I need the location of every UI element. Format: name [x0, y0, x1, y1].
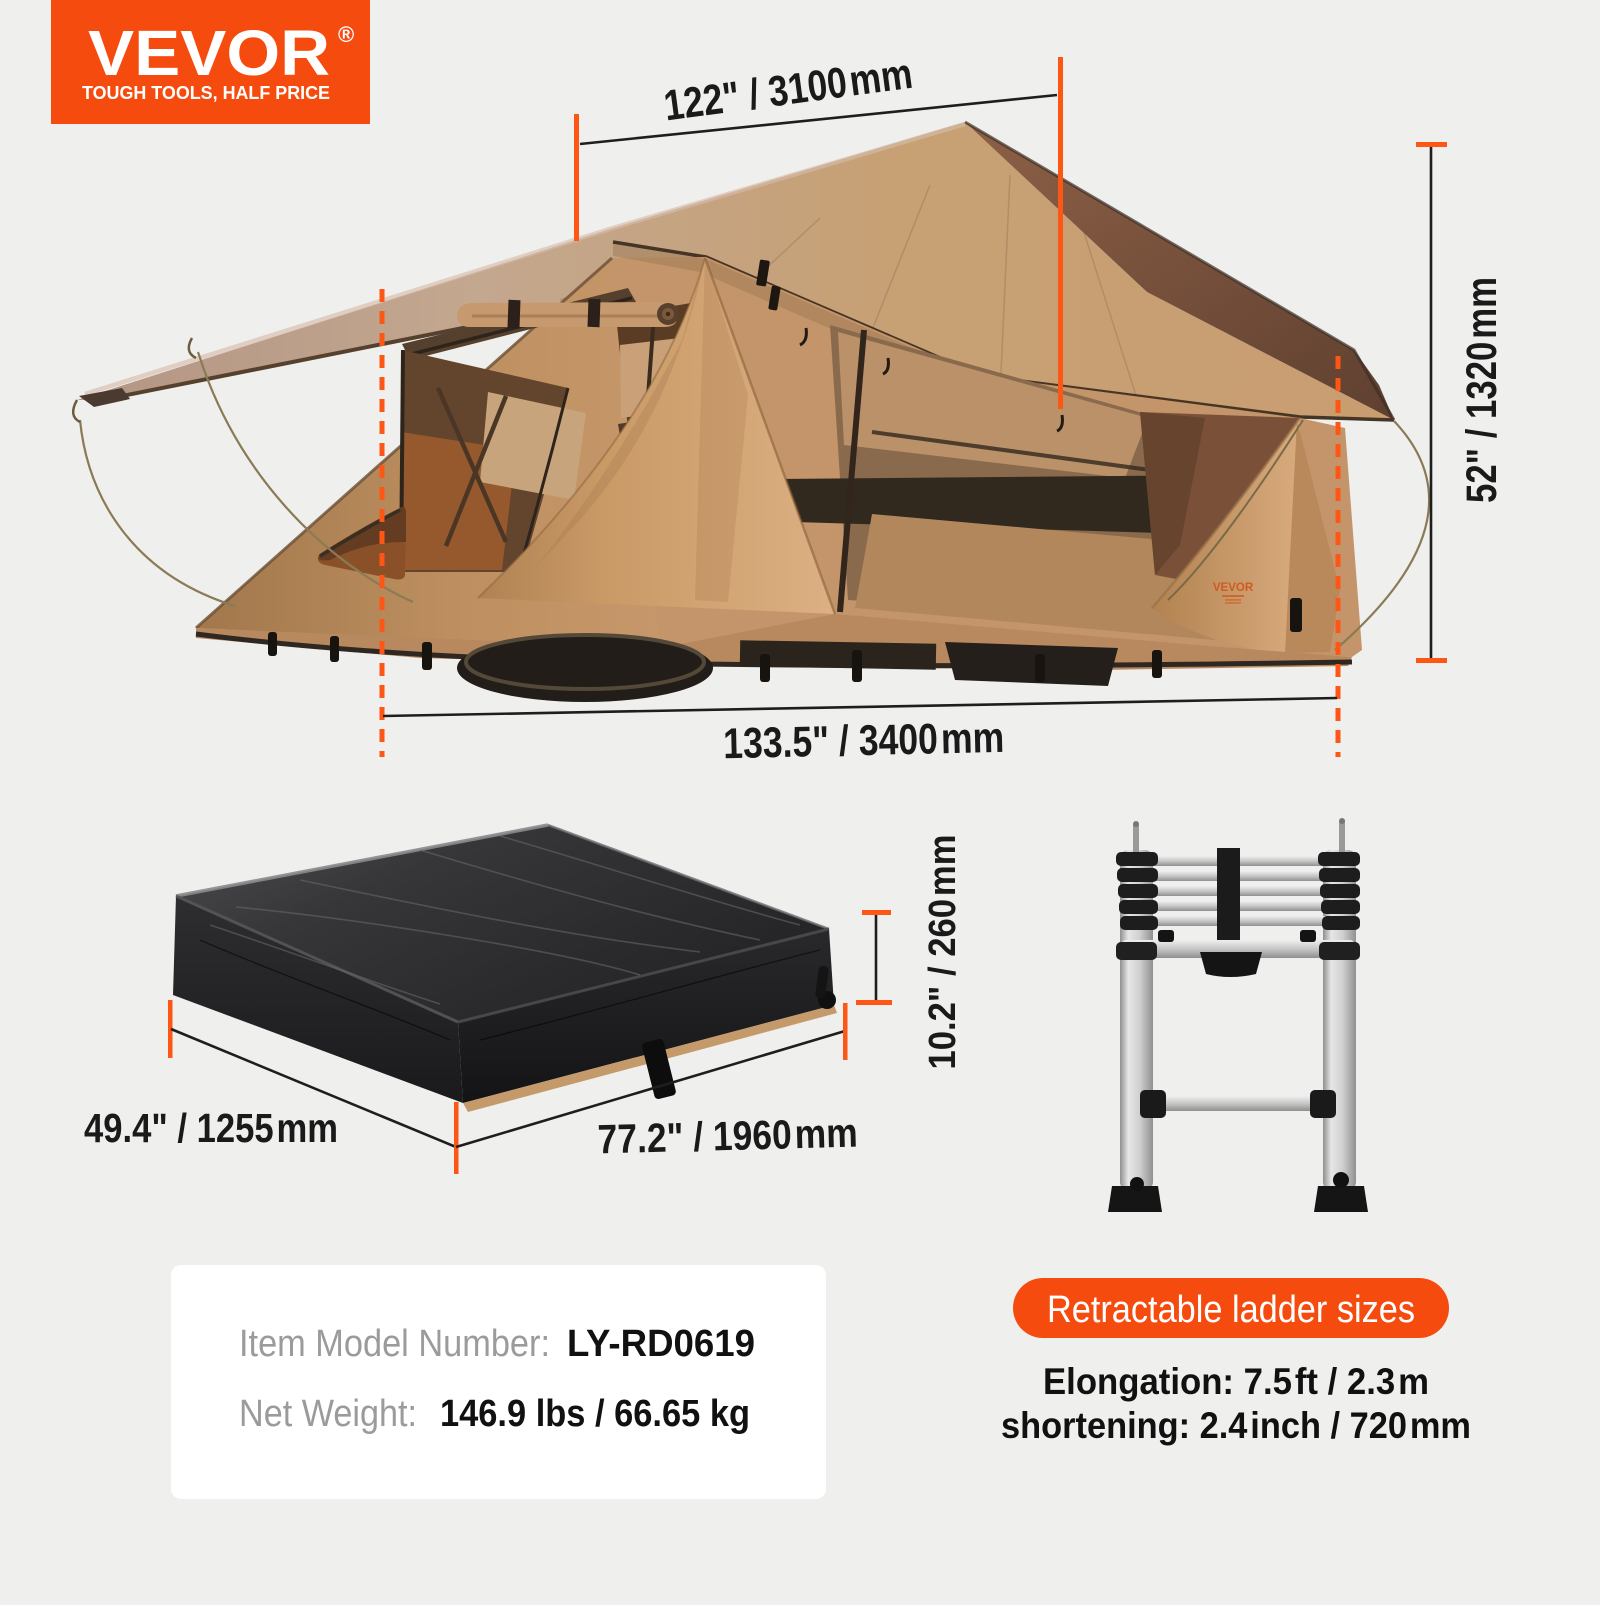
- svg-text:133.5" / 3400 mm: 133.5" / 3400 mm: [723, 714, 1005, 768]
- svg-text:Elongation: 7.5 ft / 2.3 m: Elongation: 7.5 ft / 2.3 m: [1043, 1361, 1429, 1402]
- svg-text:77.2" / 1960 mm: 77.2" / 1960 mm: [597, 1110, 858, 1163]
- svg-text:10.2" / 260 mm: 10.2" / 260 mm: [922, 835, 964, 1070]
- svg-text:VEVOR: VEVOR: [1213, 582, 1254, 594]
- svg-text:VEVOR: VEVOR: [88, 17, 330, 89]
- svg-text:Item Model Number:: Item Model Number:: [239, 1323, 550, 1365]
- svg-text:LY-RD0619: LY-RD0619: [567, 1323, 755, 1365]
- svg-text:52" / 1320 mm: 52" / 1320 mm: [1458, 277, 1506, 503]
- svg-text:TOUGH TOOLS, HALF PRICE: TOUGH TOOLS, HALF PRICE: [82, 83, 330, 103]
- svg-text:146.9 lbs / 66.65 kg: 146.9 lbs / 66.65 kg: [440, 1393, 750, 1435]
- svg-text:49.4" / 1255 mm: 49.4" / 1255 mm: [84, 1105, 338, 1151]
- svg-text:Retractable ladder sizes: Retractable ladder sizes: [1047, 1289, 1415, 1331]
- svg-text:shortening: 2.4 inch / 720 mm: shortening: 2.4 inch / 720 mm: [1001, 1405, 1471, 1446]
- svg-text:Net Weight:: Net Weight:: [239, 1393, 417, 1435]
- svg-text:®: ®: [338, 22, 354, 47]
